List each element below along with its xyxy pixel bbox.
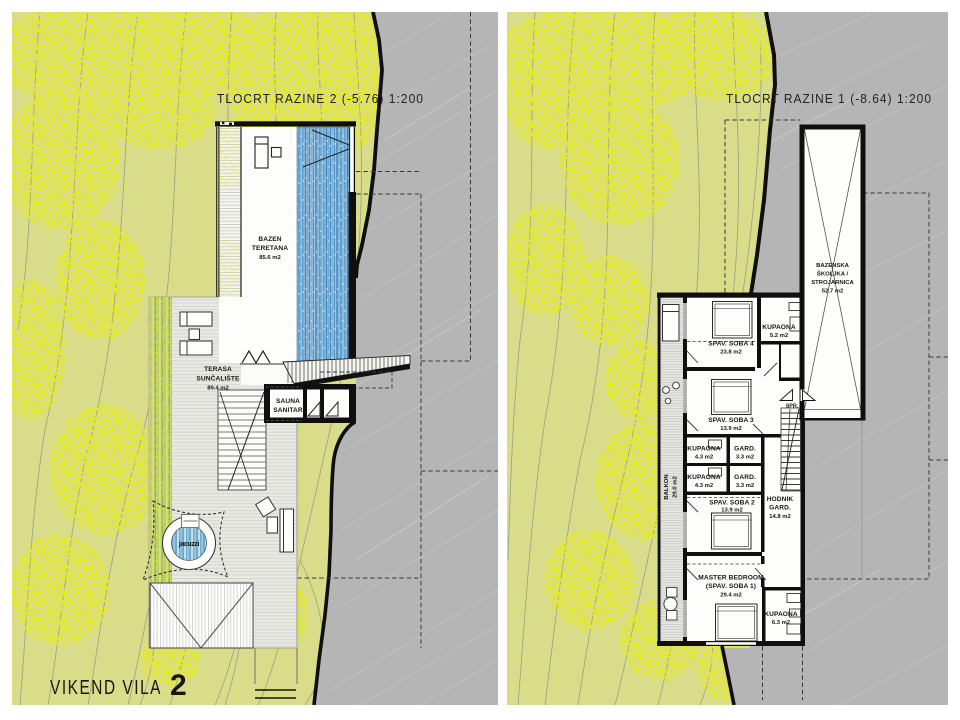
svg-text:BAZEN: BAZEN	[258, 236, 281, 243]
svg-text:SPAV. SOBA 4: SPAV. SOBA 4	[708, 341, 754, 348]
svg-text:29.4 m2: 29.4 m2	[720, 593, 742, 599]
svg-text:3.3 m2: 3.3 m2	[736, 483, 755, 489]
svg-text:SPR.: SPR.	[786, 404, 799, 410]
svg-text:3.3 m2: 3.3 m2	[736, 455, 755, 461]
svg-text:BAZENSKA: BAZENSKA	[816, 263, 849, 269]
svg-text:VIKEND VILA: VIKEND VILA	[50, 677, 162, 699]
svg-text:jacuzzi: jacuzzi	[178, 541, 200, 548]
svg-text:GARD.: GARD.	[734, 446, 756, 453]
svg-text:13.9 m2: 13.9 m2	[721, 508, 743, 514]
svg-text:TERASA: TERASA	[204, 366, 232, 373]
svg-text:4.3 m2: 4.3 m2	[695, 455, 714, 461]
svg-text:TLOCRT RAZINE 2 (-5.76) 1:200: TLOCRT RAZINE 2 (-5.76) 1:200	[217, 91, 424, 106]
svg-text:KUPAONA: KUPAONA	[687, 446, 721, 453]
svg-text:SPAV. SOBA 3: SPAV. SOBA 3	[708, 417, 754, 424]
svg-text:29.0 m2: 29.0 m2	[673, 475, 679, 497]
svg-text:4.3 m2: 4.3 m2	[695, 483, 714, 489]
svg-text:STROJARNICA: STROJARNICA	[811, 280, 854, 286]
svg-text:GARD.: GARD.	[769, 505, 791, 512]
svg-text:2: 2	[170, 669, 187, 702]
svg-text:5.2 m2: 5.2 m2	[770, 333, 789, 339]
svg-text:KUPAONA: KUPAONA	[762, 324, 796, 331]
svg-text:KUPAONA: KUPAONA	[764, 611, 798, 618]
svg-text:SUNČALIŠTE: SUNČALIŠTE	[196, 374, 240, 383]
svg-text:ŠKOLJKA /: ŠKOLJKA /	[817, 270, 849, 278]
svg-text:SAUNA: SAUNA	[276, 398, 300, 405]
svg-text:52.7 m2: 52.7 m2	[822, 289, 844, 295]
svg-text:KUPAONA: KUPAONA	[687, 474, 721, 481]
svg-text:6.3 m2: 6.3 m2	[772, 620, 791, 626]
svg-text:TERETANA: TERETANA	[252, 245, 288, 252]
svg-text:85.6 m2: 85.6 m2	[259, 255, 281, 261]
svg-text:14.8 m2: 14.8 m2	[769, 514, 791, 520]
svg-text:TLOCRT RAZINE 1 (-8.64) 1:200: TLOCRT RAZINE 1 (-8.64) 1:200	[726, 91, 932, 106]
svg-text:HODNIK: HODNIK	[767, 496, 794, 503]
svg-text:MASTER BEDROOM: MASTER BEDROOM	[698, 575, 764, 582]
svg-text:SANITAR: SANITAR	[273, 407, 303, 414]
svg-text:GARD.: GARD.	[734, 474, 756, 481]
svg-text:13.9 m2: 13.9 m2	[720, 426, 742, 432]
svg-text:BALKON: BALKON	[664, 474, 670, 499]
svg-text:SPAV. SOBA 2: SPAV. SOBA 2	[709, 500, 755, 507]
svg-text:23.8 m2: 23.8 m2	[720, 350, 742, 356]
svg-text:(SPAV. SOBA 1): (SPAV. SOBA 1)	[706, 583, 756, 590]
